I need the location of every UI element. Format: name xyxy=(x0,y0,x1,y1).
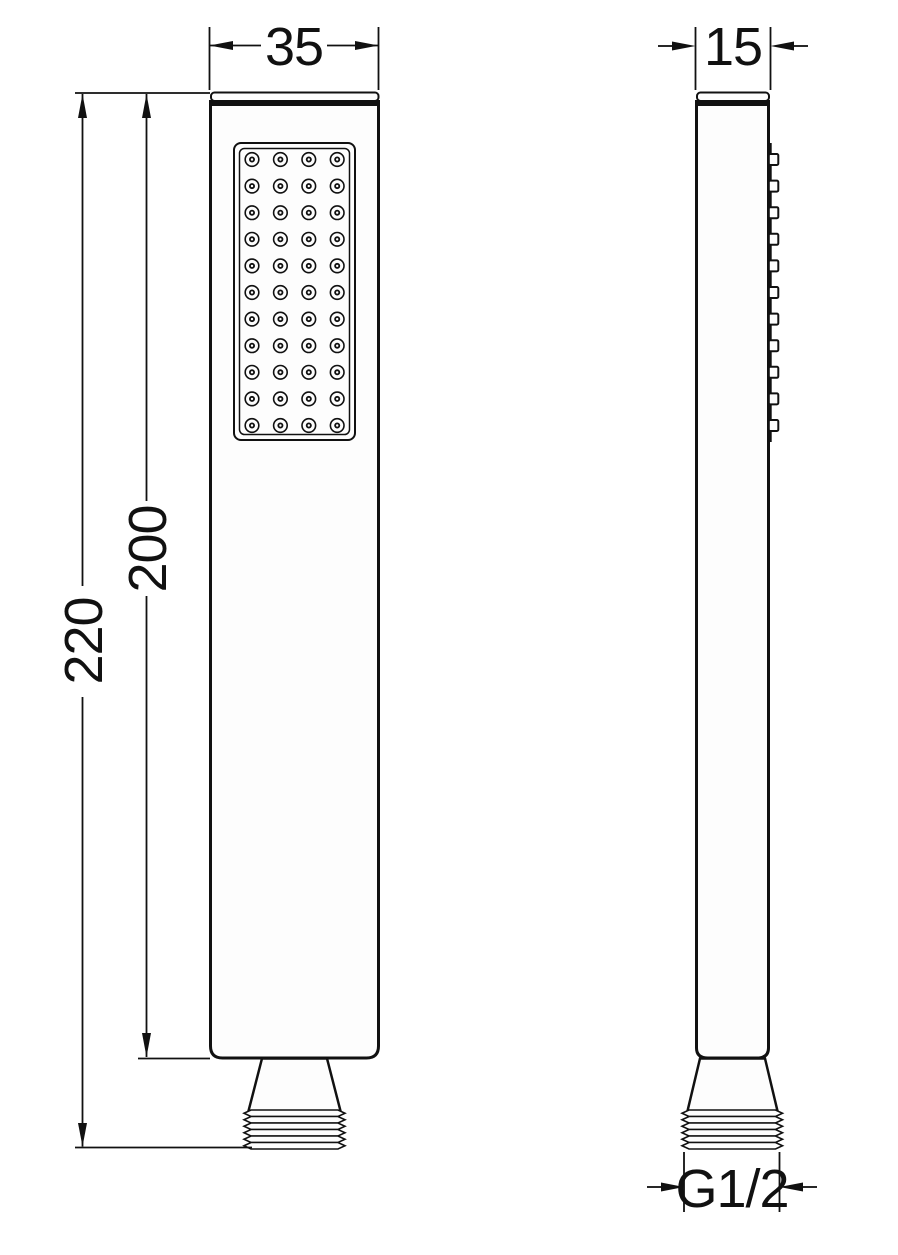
nozzle-center-icon xyxy=(278,237,282,241)
nozzle-center-icon xyxy=(278,397,282,401)
thread-rib xyxy=(244,1110,345,1117)
nozzle-bump-icon xyxy=(769,287,779,298)
nozzle-center-icon xyxy=(278,370,282,374)
nozzle-center-icon xyxy=(307,317,311,321)
nozzle-center-icon xyxy=(335,237,339,241)
thread-rib xyxy=(682,1136,783,1143)
nozzle-center-icon xyxy=(278,211,282,215)
nozzle-center-icon xyxy=(335,184,339,188)
nozzle-center-icon xyxy=(307,211,311,215)
nozzle-center-icon xyxy=(250,317,254,321)
nozzle-center-icon xyxy=(335,264,339,268)
nozzle-center-icon xyxy=(307,184,311,188)
nozzle-center-icon xyxy=(307,397,311,401)
thread-rib xyxy=(244,1130,345,1137)
nozzle-center-icon xyxy=(335,423,339,427)
dim-head-width: 35 xyxy=(210,17,379,90)
dim-body-length: 200 xyxy=(118,94,210,1059)
nozzle-bump-icon xyxy=(769,367,779,378)
nozzle-bump-icon xyxy=(769,393,779,404)
nozzle-center-icon xyxy=(250,423,254,427)
nozzle-center-icon xyxy=(335,397,339,401)
thread-rib xyxy=(244,1136,345,1143)
nozzle-center-icon xyxy=(335,370,339,374)
nozzle-center-icon xyxy=(278,184,282,188)
dim-value-head-depth: 15 xyxy=(704,17,762,77)
nozzle-center-icon xyxy=(250,264,254,268)
nozzle-center-icon xyxy=(278,264,282,268)
nozzle-center-icon xyxy=(250,157,254,161)
nozzle-center-icon xyxy=(307,264,311,268)
nozzle-center-icon xyxy=(250,237,254,241)
nozzle-center-icon xyxy=(250,184,254,188)
arrowhead-down-icon xyxy=(142,1033,151,1057)
nozzle-center-icon xyxy=(335,211,339,215)
nozzle-center-icon xyxy=(250,344,254,348)
arrowhead-up-icon xyxy=(78,94,87,118)
thread-rib xyxy=(244,1117,345,1124)
nozzle-center-icon xyxy=(307,157,311,161)
nozzle-center-icon xyxy=(278,317,282,321)
nozzle-bump-icon xyxy=(769,260,779,271)
arrowhead-up-icon xyxy=(142,94,151,118)
nozzle-center-icon xyxy=(250,370,254,374)
nozzle-center-icon xyxy=(278,157,282,161)
arrowhead-left-icon xyxy=(210,41,234,50)
nozzle-bump-icon xyxy=(769,340,779,351)
arrowhead-left-icon xyxy=(771,42,795,51)
nozzle-bump-icon xyxy=(769,234,779,245)
nozzle-center-icon xyxy=(250,397,254,401)
dim-head-depth: 15 xyxy=(658,17,808,90)
thread-rib xyxy=(682,1117,783,1124)
nozzle-center-icon xyxy=(278,344,282,348)
nozzle-center-icon xyxy=(307,344,311,348)
front-view xyxy=(211,93,379,1150)
dim-value-body-length: 200 xyxy=(118,505,178,592)
nozzle-center-icon xyxy=(335,344,339,348)
nozzle-center-icon xyxy=(278,290,282,294)
dim-thread-size: G1/2 xyxy=(647,1152,817,1219)
nozzle-center-icon xyxy=(278,423,282,427)
nozzle-center-icon xyxy=(335,290,339,294)
thread-rib xyxy=(244,1143,345,1150)
side-view xyxy=(682,93,783,1150)
side-cone-neck xyxy=(688,1059,778,1112)
nozzle-bump-icon xyxy=(769,181,779,192)
arrowhead-right-icon xyxy=(355,41,379,50)
nozzle-bump-icon xyxy=(769,314,779,325)
nozzle-center-icon xyxy=(335,317,339,321)
nozzle-bump-icon xyxy=(769,420,779,431)
arrowhead-down-icon xyxy=(78,1123,87,1147)
arrowhead-right-icon xyxy=(672,42,696,51)
dim-value-thread-size: G1/2 xyxy=(675,1159,788,1219)
side-body-outline xyxy=(697,102,769,1059)
front-cone-neck xyxy=(249,1059,341,1112)
technical-drawing: 35 220 200 15 G1/2 xyxy=(0,0,898,1255)
nozzle-bump-icon xyxy=(769,207,779,218)
nozzle-center-icon xyxy=(307,290,311,294)
thread-rib xyxy=(682,1143,783,1150)
nozzle-center-icon xyxy=(335,157,339,161)
nozzle-center-icon xyxy=(307,237,311,241)
nozzle-center-icon xyxy=(250,211,254,215)
nozzle-center-icon xyxy=(250,290,254,294)
front-head-cap xyxy=(211,93,379,102)
dim-value-total-length: 220 xyxy=(54,597,114,684)
thread-rib xyxy=(682,1123,783,1130)
drawing-canvas: 35 220 200 15 G1/2 xyxy=(0,0,898,1255)
nozzle-center-icon xyxy=(307,370,311,374)
dim-value-head-width: 35 xyxy=(265,17,323,77)
nozzle-bump-icon xyxy=(769,154,779,165)
front-thread xyxy=(244,1110,345,1149)
nozzle-center-icon xyxy=(307,423,311,427)
side-thread xyxy=(682,1110,783,1149)
thread-rib xyxy=(244,1123,345,1130)
thread-rib xyxy=(682,1110,783,1117)
thread-rib xyxy=(682,1130,783,1137)
side-head-cap xyxy=(697,93,769,102)
